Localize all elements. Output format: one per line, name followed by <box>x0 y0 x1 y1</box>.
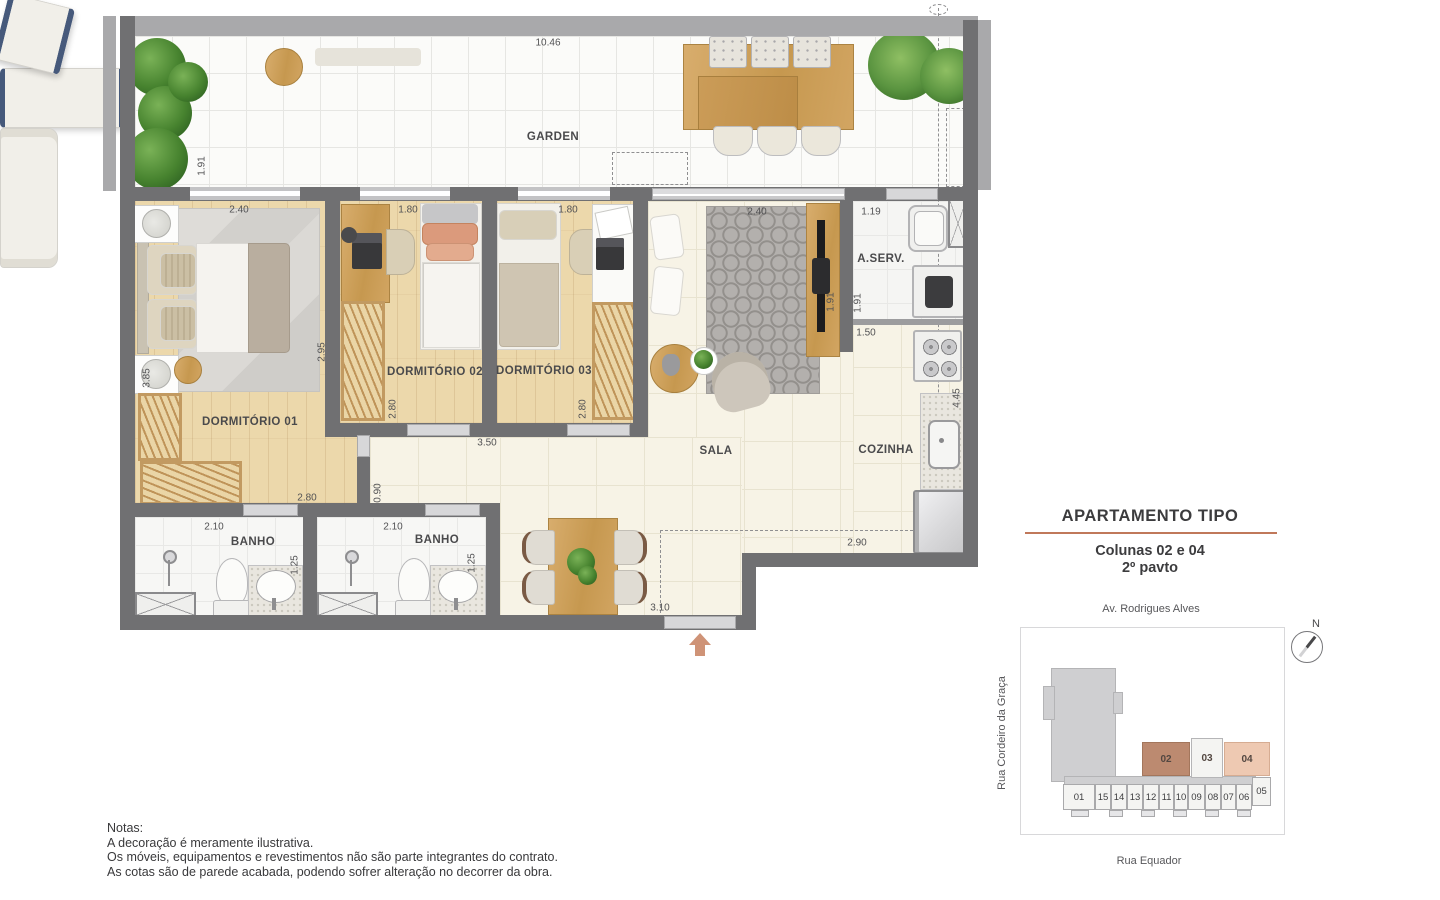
bar-chair <box>713 126 753 156</box>
dim-sala-tv: 1.91 <box>826 292 837 311</box>
sala-sofa <box>0 128 58 268</box>
site-unit-cell: 14 <box>1111 784 1127 810</box>
garden-sofa-back-cushion <box>315 48 421 66</box>
street-label-left: Rua Cordeiro da Graça <box>996 676 1008 790</box>
title-accent-rule <box>1025 532 1277 534</box>
sofa-pillow <box>649 213 685 261</box>
dim-dorm1-depth: 2.95 <box>317 342 328 361</box>
shower-mixer-icon <box>163 550 177 564</box>
site-balcony-tab <box>1071 810 1089 817</box>
garden-armchair <box>0 0 75 75</box>
compass-needle <box>1298 636 1316 658</box>
site-unit-cell: 15 <box>1095 784 1111 810</box>
dorm1-door <box>357 435 370 457</box>
washing-machine-drum <box>925 276 953 308</box>
tv-mount <box>812 258 830 294</box>
shaft-hatch <box>135 592 196 617</box>
room-label-cozinha: COZINHA <box>858 444 913 456</box>
dorm3-door <box>567 424 630 436</box>
banho2-faucet-icon <box>454 598 458 610</box>
room-label-banho2: BANHO <box>415 534 459 546</box>
dim-garden-depth: 1.91 <box>197 156 208 175</box>
dorm1-bed-sheet <box>196 243 252 353</box>
garden-projection-rect <box>612 152 688 185</box>
site-map: 02 03 04 01 15 14 13 12 11 10 09 08 07 0… <box>1020 627 1285 835</box>
site-unit-cell: 06 <box>1236 784 1252 810</box>
banho2-door <box>425 504 480 516</box>
subtitle-columns: Colunas 02 e 04 <box>1095 543 1205 559</box>
dim-garden-width: 10.46 <box>535 38 560 49</box>
dim-cozinha-bottom: 2.90 <box>847 538 866 549</box>
dim-aserv-depth: 1.91 <box>853 293 864 312</box>
compass-north-label: N <box>1312 618 1320 630</box>
bar-stool <box>709 36 747 68</box>
outer-right-wall <box>978 20 991 190</box>
site-unit-cell: 10 <box>1174 784 1188 810</box>
sala-aserv-wall <box>840 201 853 352</box>
dorm1-window <box>190 187 300 200</box>
kitchen-faucet-icon <box>939 438 944 443</box>
entry-arrow-icon <box>689 633 711 645</box>
dining-chair <box>522 530 555 565</box>
left-wall <box>120 16 135 630</box>
site-unit-cell: 05 <box>1252 777 1271 806</box>
banho2-sink <box>438 570 478 603</box>
dim-banho2-side: 1.25 <box>467 553 478 572</box>
notes-block: Notas: A decoração é meramente ilustrati… <box>107 821 558 879</box>
dim-banho1-width: 2.10 <box>204 522 223 533</box>
room-label-dorm3: DORMITÓRIO 03 <box>496 365 592 377</box>
bottom-wall <box>120 615 756 630</box>
stove <box>913 330 962 382</box>
site-unit-cell: 13 <box>1127 784 1143 810</box>
site-unit-cell: 08 <box>1205 784 1221 810</box>
nightstand-plant-sketch-icon <box>142 209 171 238</box>
right-wall <box>963 20 978 567</box>
dorm3-sala-wall <box>633 201 648 437</box>
dim-sala-width: 2.40 <box>747 207 766 218</box>
site-unit-cell: 09 <box>1188 784 1205 810</box>
banho-divider-wall <box>303 503 317 630</box>
notes-heading: Notas: <box>107 821 558 836</box>
sala-sliding-door <box>652 188 845 200</box>
garden-bar-lower-table <box>698 76 798 130</box>
kitchen-sink <box>928 420 960 469</box>
dim-entry: 3.10 <box>650 603 669 614</box>
coffee-table-decor <box>662 354 680 376</box>
dorm3-window <box>518 187 610 200</box>
dorm2-desk-lamp-icon <box>341 227 357 243</box>
dim-banho1-side: 1.25 <box>290 555 301 574</box>
dorm2-bed-gray-pillow <box>422 204 478 224</box>
bar-stool <box>751 36 789 68</box>
dim-banho2-width: 2.10 <box>383 522 402 533</box>
room-label-dorm1: DORMITÓRIO 01 <box>202 416 298 428</box>
laundry-tank-basin <box>914 211 944 246</box>
building-tower-bump <box>1113 692 1123 714</box>
bed-pillow-small <box>160 253 196 288</box>
dorm1-bed-blanket <box>248 243 290 353</box>
dorm1-stool <box>174 356 202 384</box>
building-tower-bump <box>1043 686 1055 720</box>
garden-side-table <box>265 48 303 86</box>
site-unit-cell: 11 <box>1159 784 1174 810</box>
dorm2-laptop-icon <box>352 233 382 269</box>
dorm2-bed-blanket <box>422 262 480 348</box>
shower-stem <box>350 560 352 586</box>
outer-left-wall <box>103 16 116 191</box>
dorm1-wardrobe <box>140 461 242 505</box>
bed-pillow <box>499 210 557 240</box>
garden-plant-icon <box>168 62 208 102</box>
toilet-bowl <box>398 558 430 606</box>
dining-chair <box>614 570 647 605</box>
dim-cozinha-side: 4.45 <box>952 388 963 407</box>
site-unit-03: 03 <box>1191 738 1223 778</box>
bar-chair <box>757 126 797 156</box>
site-balcony-tab <box>1109 810 1123 817</box>
bar-stool <box>793 36 831 68</box>
room-label-sala: SALA <box>700 445 733 457</box>
dim-cozinha-top: 1.50 <box>856 328 875 339</box>
site-balcony-tab <box>1237 810 1251 817</box>
site-unit-cell: 07 <box>1221 784 1236 810</box>
step-wall-horizontal <box>742 553 978 567</box>
dorm2-chair <box>386 229 415 275</box>
bar-chair <box>801 126 841 156</box>
room-label-banho1: BANHO <box>231 536 275 548</box>
dining-chair <box>614 530 647 565</box>
aserv-cozinha-divider <box>853 319 963 325</box>
banho2-dining-wall <box>486 503 500 630</box>
notes-line-2: Os móveis, equipamentos e revestimentos … <box>107 850 558 865</box>
dorm3-laptop-icon <box>596 238 624 270</box>
bed-pillow-small <box>160 306 196 341</box>
banho1-sink <box>256 570 296 603</box>
banho1-faucet-icon <box>272 598 276 610</box>
sofa-pillow <box>650 266 685 317</box>
room-label-dorm2: DORMITÓRIO 02 <box>387 366 483 378</box>
shaft-hatch <box>317 592 378 617</box>
dim-aserv-width: 1.19 <box>861 207 880 218</box>
dorm2-wardrobe <box>341 301 385 421</box>
dim-dorm1-side: 3.85 <box>142 368 153 387</box>
aserv-door <box>886 188 938 200</box>
street-label-top: Av. Rodrigues Alves <box>1102 603 1199 615</box>
dim-dorm3-width: 1.80 <box>558 205 577 216</box>
ceiling-projection-v <box>660 530 661 613</box>
room-label-garden: GARDEN <box>527 131 579 143</box>
dim-dorm2-depth: 2.80 <box>388 399 399 418</box>
toilet-bowl <box>216 558 248 606</box>
shower-mixer-icon <box>345 550 359 564</box>
banho1-door <box>243 504 298 516</box>
site-balcony-tab <box>1205 810 1219 817</box>
dining-plant-icon <box>578 566 597 585</box>
dorm3-wardrobe <box>592 302 636 420</box>
site-balcony-tab <box>1173 810 1187 817</box>
site-unit-cell: 01 <box>1063 784 1095 810</box>
dim-hall-passage: 0.90 <box>373 483 384 502</box>
room-label-aserv: A.SERV. <box>857 253 905 265</box>
garden-plant-icon <box>126 128 188 190</box>
dim-dorm1-width: 2.40 <box>229 205 248 216</box>
garden-parapet-wall <box>120 16 978 36</box>
site-unit-02: 02 <box>1142 742 1190 776</box>
entry-arrow-stem <box>695 645 705 656</box>
dorm2-door <box>407 424 470 436</box>
dorm1-dorm2-wall <box>325 201 340 437</box>
ceiling-projection-h <box>660 530 938 531</box>
dim-dorm3-depth: 2.80 <box>578 399 589 418</box>
entry-door <box>664 616 736 629</box>
dining-chair <box>522 570 555 605</box>
street-label-bottom: Rua Equador <box>1117 855 1182 867</box>
dim-dorm1-bottom: 2.80 <box>297 493 316 504</box>
floor-plan-page: GARDEN DORMITÓRIO 01 DORMITÓRIO 02 DORMI… <box>0 0 1440 900</box>
notes-line-3: As cotas são de parede acabada, podendo … <box>107 865 558 880</box>
dim-dorm2-width: 1.80 <box>398 205 417 216</box>
dim-hall: 3.50 <box>477 438 496 449</box>
site-unit-04: 04 <box>1224 742 1270 776</box>
bed-pillow-salmon <box>422 223 478 245</box>
dorm2-window <box>360 187 450 200</box>
dorm1-wardrobe <box>138 393 182 461</box>
subtitle-floor: 2º pavto <box>1122 560 1178 576</box>
dorm3-bed-blanket <box>499 263 559 347</box>
site-balcony-tab <box>1141 810 1155 817</box>
compass-icon <box>1291 631 1323 663</box>
duct-top-symbol <box>929 4 948 15</box>
bed-pillow-salmon <box>426 243 474 261</box>
notes-line-1: A decoração é meramente ilustrativa. <box>107 836 558 851</box>
site-unit-cell: 12 <box>1143 784 1159 810</box>
dorm2-dorm3-wall <box>482 201 497 437</box>
shower-stem <box>168 560 170 586</box>
page-title: APARTAMENTO TIPO <box>1062 507 1239 526</box>
building-tower <box>1051 668 1116 782</box>
sala-plant-icon <box>694 350 713 369</box>
